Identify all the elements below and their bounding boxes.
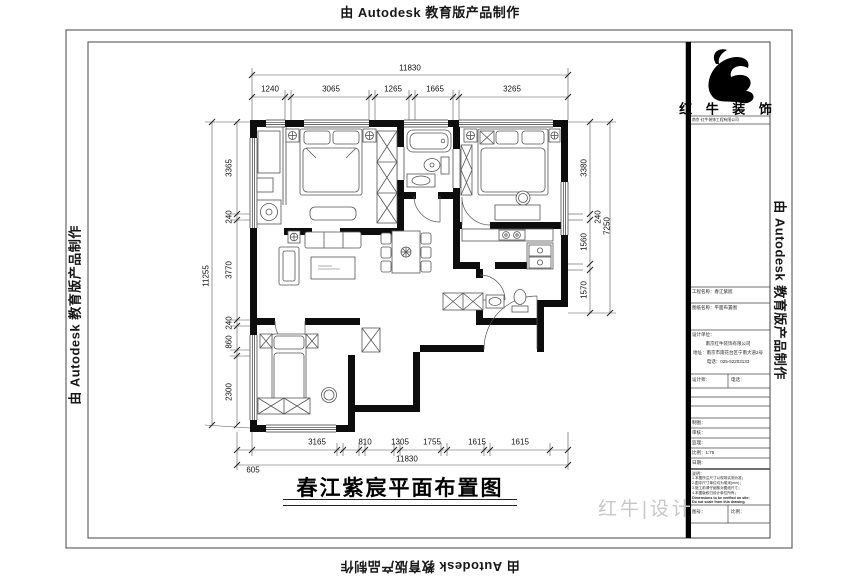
dim-label: 240	[225, 316, 234, 329]
dim-label: 810	[358, 438, 371, 447]
dim-label: 860	[225, 335, 234, 348]
titleblock-project-row: 工程名称：春江紫宸	[692, 290, 733, 295]
bull-logo-icon	[708, 49, 753, 103]
info-row: 制图：	[692, 421, 706, 426]
dim-label: 1570	[580, 281, 589, 299]
info-row: 比例：1:75	[692, 451, 714, 456]
dim-top-total: 11830	[399, 64, 421, 73]
corridor-cabinet	[443, 293, 483, 310]
bathtub	[407, 130, 451, 152]
note-line: Do not scale from this drawing.	[692, 501, 746, 505]
autodesk-watermark-right: 由 Autodesk 教育版产品制作	[772, 200, 791, 379]
dim-label: 1755	[423, 438, 441, 447]
dim-label: 3265	[503, 85, 521, 94]
bed-third	[260, 334, 318, 408]
titleblock-unit-row: 设计单位：	[692, 333, 715, 338]
wardrobe-second	[461, 145, 472, 195]
toilet	[424, 157, 449, 174]
dim-label: 240	[225, 210, 234, 223]
dim-bottom-total: 11830	[396, 455, 418, 464]
company-name: 南京红牛装饰有限公司	[690, 342, 766, 347]
dim-label: 3365	[225, 159, 234, 177]
company-address: 地址：南京市雨花台区宁南大道2号	[690, 351, 766, 356]
coffee-table	[311, 257, 355, 279]
dim-label: 240	[594, 210, 603, 223]
design-brand-mark: 红牛|设计	[598, 494, 694, 521]
inner-border	[88, 42, 770, 538]
title-underline	[283, 499, 517, 506]
hall-cabinet	[362, 328, 380, 352]
info-row: 日期：	[692, 461, 706, 466]
dining-table	[381, 231, 431, 273]
info-row: 监理：	[692, 441, 706, 446]
dim-left-total: 11255	[202, 265, 211, 287]
cad-sheet: { "watermark": { "text": "由 Autodesk 教育版…	[0, 0, 860, 580]
dim-label: 2300	[225, 383, 234, 401]
stool	[322, 388, 337, 403]
washing-machine	[257, 178, 281, 224]
balcony-cabinet	[258, 131, 280, 173]
bed-second	[478, 129, 548, 195]
bathroom-sink	[407, 174, 435, 187]
armchair	[279, 247, 299, 285]
dim-label: 1240	[261, 85, 279, 94]
tv-board	[310, 207, 356, 220]
dim-bottom-offset: 605	[246, 466, 259, 475]
sheet-title: 春江紫宸平面布置图	[297, 472, 504, 502]
bed-master	[300, 129, 362, 195]
brand-logo-text: 红 牛 装 饰	[679, 99, 777, 118]
dim-label: 3770	[225, 261, 234, 279]
brand-tagline: 南京·红牛装饰工程有限公司	[692, 118, 739, 122]
dim-label: 3380	[580, 159, 589, 177]
dim-label: 1615	[511, 438, 529, 447]
info-row: 审核：	[692, 431, 706, 436]
dim-label: 1560	[580, 233, 589, 251]
wardrobe-master	[377, 131, 397, 223]
dim-right-total: 7250	[603, 217, 612, 235]
phone-cell: 电话：	[731, 378, 745, 383]
autodesk-watermark-top: 由 Autodesk 教育版产品制作	[340, 2, 519, 21]
scale-cell: 比例：	[731, 510, 745, 515]
dim-label: 3065	[322, 85, 340, 94]
sheet-no-cell: 图号：	[692, 510, 706, 515]
dim-label: 1265	[384, 85, 402, 94]
dim-label: 1615	[468, 438, 486, 447]
titleblock-sheet-row: 图纸名称：平面布置图	[692, 306, 737, 311]
side-table-lamp-icon	[288, 231, 300, 243]
dim-label: 3165	[308, 438, 326, 447]
wardrobe-third	[258, 398, 310, 414]
dim-label: 1305	[391, 438, 409, 447]
company-phone: 电话：025-52203133	[690, 360, 766, 365]
furniture	[257, 129, 560, 414]
dim-label: 1665	[426, 85, 444, 94]
bathroom-sink	[486, 295, 504, 308]
autodesk-watermark-bottom: 由 Autodesk 教育版产品制作	[340, 558, 519, 577]
toilet	[512, 290, 528, 313]
sofa	[305, 232, 361, 248]
designer-cell: 设计师：	[692, 378, 710, 383]
autodesk-watermark-left: 由 Autodesk 教育版产品制作	[65, 225, 84, 404]
